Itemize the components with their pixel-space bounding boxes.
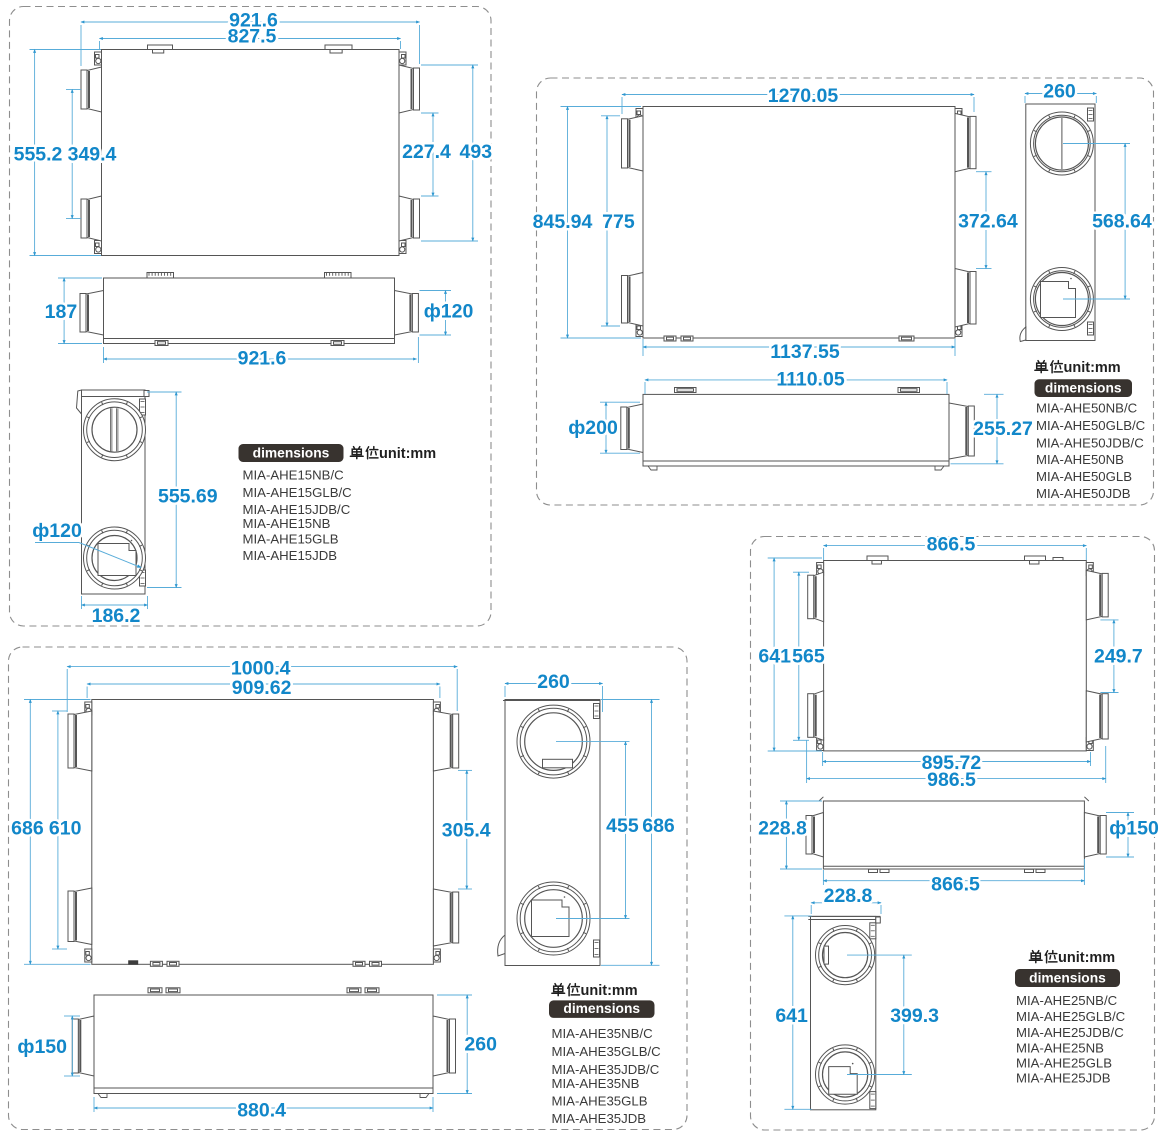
svg-text:260: 260: [1043, 81, 1076, 103]
svg-text:827.5: 827.5: [228, 26, 277, 48]
svg-text:dimensions: dimensions: [1029, 970, 1106, 985]
svg-text:MIA-AHE35GLB: MIA-AHE35GLB: [552, 1094, 648, 1109]
svg-text:565: 565: [792, 646, 825, 668]
svg-text:MIA-AHE35JDB/C: MIA-AHE35JDB/C: [552, 1062, 660, 1077]
svg-text:186.2: 186.2: [92, 605, 141, 627]
svg-text:MIA-AHE35NB: MIA-AHE35NB: [552, 1076, 640, 1091]
svg-text:1137.55: 1137.55: [770, 341, 840, 363]
svg-text:ф120: ф120: [32, 520, 82, 542]
svg-text:MIA-AHE25NB/C: MIA-AHE25NB/C: [1016, 993, 1118, 1008]
svg-text:dimensions: dimensions: [563, 1001, 640, 1016]
svg-text:MIA-AHE15JDB/C: MIA-AHE15JDB/C: [243, 502, 351, 517]
svg-text:MIA-AHE50GLB: MIA-AHE50GLB: [1036, 469, 1132, 484]
svg-text:ф150: ф150: [1109, 818, 1159, 840]
svg-text:MIA-AHE15JDB: MIA-AHE15JDB: [243, 548, 338, 563]
svg-text:MIA-AHE25GLB/C: MIA-AHE25GLB/C: [1016, 1009, 1126, 1024]
svg-text:775: 775: [602, 211, 635, 233]
svg-text:255.27: 255.27: [973, 418, 1033, 440]
svg-text:MIA-AHE50JDB/C: MIA-AHE50JDB/C: [1036, 436, 1144, 451]
svg-text:ф200: ф200: [568, 417, 618, 439]
svg-text:909.62: 909.62: [232, 677, 292, 699]
svg-text:unit:mm: unit:mm: [1058, 950, 1115, 966]
svg-text:1270.05: 1270.05: [768, 85, 839, 107]
svg-text:MIA-AHE35JDB: MIA-AHE35JDB: [552, 1111, 647, 1126]
svg-text:228.8: 228.8: [758, 818, 807, 840]
svg-text:260: 260: [537, 671, 570, 693]
svg-text:dimensions: dimensions: [253, 445, 330, 460]
svg-text:641: 641: [775, 1005, 808, 1027]
svg-text:641: 641: [758, 646, 791, 668]
svg-text:986.5: 986.5: [927, 769, 976, 791]
svg-text:187: 187: [45, 301, 78, 323]
svg-text:686: 686: [11, 817, 44, 839]
svg-text:MIA-AHE35NB/C: MIA-AHE35NB/C: [552, 1026, 654, 1041]
svg-text:610: 610: [49, 817, 82, 839]
svg-text:866.5: 866.5: [931, 874, 980, 896]
svg-text:MIA-AHE25GLB: MIA-AHE25GLB: [1016, 1056, 1112, 1071]
svg-text:unit:mm: unit:mm: [379, 446, 436, 462]
svg-text:228.8: 228.8: [824, 885, 873, 907]
svg-text:MIA-AHE15GLB/C: MIA-AHE15GLB/C: [243, 485, 353, 500]
svg-text:1110.05: 1110.05: [776, 369, 844, 391]
svg-text:ф120: ф120: [424, 301, 474, 323]
svg-text:866.5: 866.5: [927, 534, 976, 556]
svg-text:unit:mm: unit:mm: [1064, 360, 1121, 376]
svg-text:MIA-AHE50JDB: MIA-AHE50JDB: [1036, 486, 1131, 501]
svg-text:unit:mm: unit:mm: [581, 983, 638, 999]
svg-text:MIA-AHE25JDB/C: MIA-AHE25JDB/C: [1016, 1025, 1124, 1040]
svg-text:921.6: 921.6: [238, 348, 287, 370]
svg-text:MIA-AHE50NB/C: MIA-AHE50NB/C: [1036, 401, 1138, 416]
svg-text:260: 260: [464, 1034, 497, 1056]
svg-text:MIA-AHE35GLB/C: MIA-AHE35GLB/C: [552, 1044, 662, 1059]
svg-text:MIA-AHE25JDB: MIA-AHE25JDB: [1016, 1071, 1111, 1086]
svg-text:dimensions: dimensions: [1045, 380, 1122, 395]
svg-text:493: 493: [460, 141, 493, 163]
svg-text:MIA-AHE15GLB: MIA-AHE15GLB: [243, 532, 339, 547]
svg-text:ф150: ф150: [17, 1036, 67, 1058]
svg-text:MIA-AHE25NB: MIA-AHE25NB: [1016, 1041, 1104, 1056]
svg-text:455: 455: [606, 815, 639, 837]
svg-text:227.4: 227.4: [402, 141, 451, 163]
svg-text:MIA-AHE15NB/C: MIA-AHE15NB/C: [243, 468, 345, 483]
svg-text:372.64: 372.64: [958, 211, 1018, 233]
svg-text:686: 686: [642, 815, 675, 837]
svg-text:MIA-AHE50GLB/C: MIA-AHE50GLB/C: [1036, 418, 1146, 433]
svg-text:399.3: 399.3: [890, 1005, 939, 1027]
svg-text:555.69: 555.69: [158, 486, 218, 508]
svg-text:568.64: 568.64: [1092, 211, 1152, 233]
svg-text:249.7: 249.7: [1094, 646, 1143, 668]
svg-text:349.4: 349.4: [68, 144, 117, 166]
svg-text:MIA-AHE15NB: MIA-AHE15NB: [243, 516, 331, 531]
svg-text:555.2: 555.2: [14, 144, 63, 166]
svg-text:MIA-AHE50NB: MIA-AHE50NB: [1036, 452, 1124, 467]
svg-text:845.94: 845.94: [533, 211, 593, 233]
svg-text:305.4: 305.4: [442, 819, 491, 841]
svg-text:880.4: 880.4: [237, 1100, 286, 1122]
